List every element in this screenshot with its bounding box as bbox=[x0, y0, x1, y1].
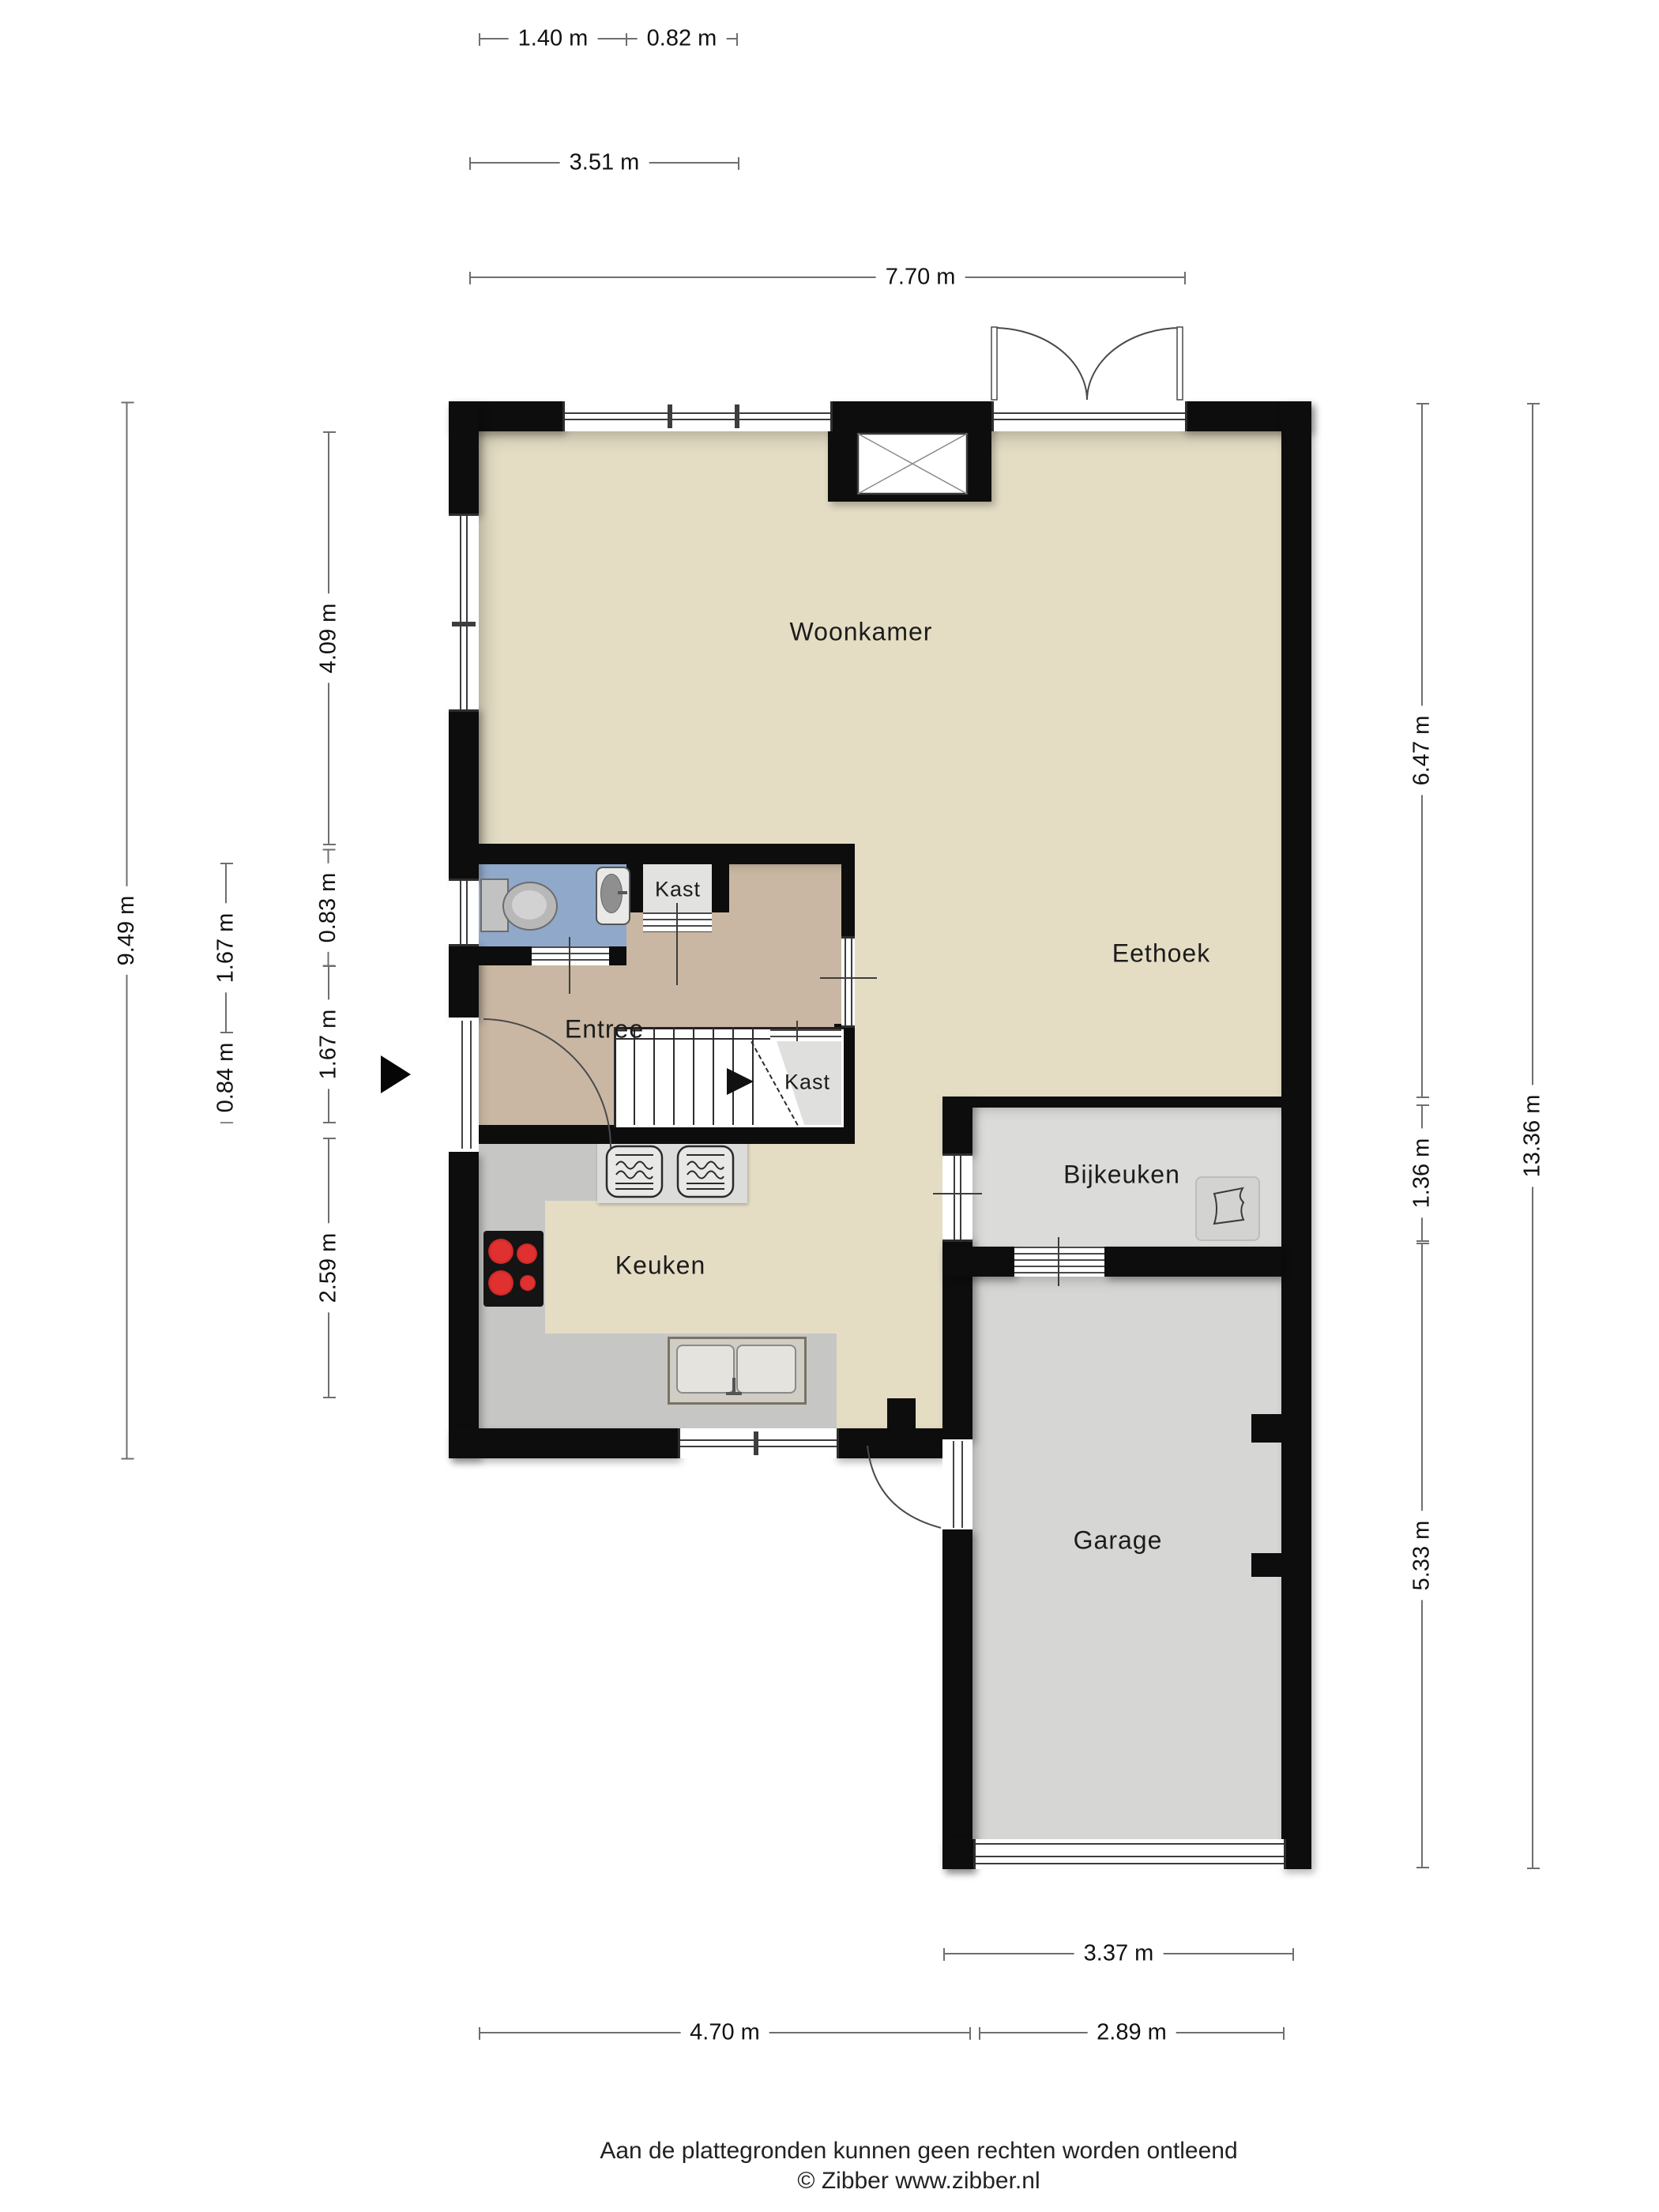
kitchen-sink-basin bbox=[676, 1345, 735, 1394]
window bbox=[449, 513, 479, 712]
dimension-bottom-289: 2.89 m bbox=[980, 2032, 1284, 2033]
footer-copyright: © Zibber www.zibber.nl bbox=[797, 2168, 1040, 2195]
window bbox=[942, 1153, 972, 1242]
window-tick bbox=[933, 1193, 982, 1194]
window-tick bbox=[820, 977, 877, 979]
toilet-bowl-inner bbox=[512, 890, 547, 920]
wall bbox=[449, 1428, 678, 1458]
dimension-left-259: 2.59 m bbox=[328, 1138, 329, 1398]
garage-door bbox=[973, 1839, 1286, 1869]
wall bbox=[449, 1152, 479, 1458]
side-door-leaf bbox=[953, 1441, 963, 1528]
dimension-top-351: 3.51 m bbox=[470, 162, 739, 164]
boiler-icon bbox=[1195, 1176, 1260, 1241]
french-doors-icon bbox=[991, 325, 1183, 401]
room-label-eethoek: Eethoek bbox=[1112, 939, 1210, 969]
dimension-top-140: 1.40 m bbox=[480, 38, 626, 39]
wall bbox=[942, 1247, 1014, 1277]
kitchen-faucet-icon bbox=[726, 1392, 742, 1395]
floorplan-page: Woonkamer Eethoek Entree Kast Kast Keuke… bbox=[0, 0, 1659, 2212]
room-label-kast-hal: Kast bbox=[655, 878, 701, 902]
burner bbox=[488, 1270, 513, 1296]
oven-icon bbox=[605, 1145, 664, 1198]
window bbox=[678, 1428, 839, 1458]
room-label-garage: Garage bbox=[1074, 1526, 1163, 1556]
window-mullion bbox=[754, 1431, 758, 1455]
garage-floor bbox=[972, 1277, 1281, 1839]
footer-disclaimer: Aan de plattegronden kunnen geen rechten… bbox=[600, 2138, 1237, 2165]
wall-stub bbox=[887, 1398, 916, 1428]
wall bbox=[609, 946, 626, 965]
stairs-opening bbox=[770, 1029, 841, 1041]
interior-opening bbox=[1014, 1247, 1104, 1277]
dimension-right-1336: 13.36 m bbox=[1532, 404, 1533, 1868]
window-mullion bbox=[452, 622, 476, 626]
door-tick bbox=[676, 903, 678, 985]
room-label-keuken: Keuken bbox=[615, 1251, 706, 1281]
chimney-icon bbox=[857, 433, 968, 495]
dimension-top-770: 7.70 m bbox=[470, 276, 1185, 278]
wall bbox=[449, 401, 479, 513]
dimension-left-167a: 1.67 m bbox=[225, 863, 227, 1033]
wall bbox=[1281, 401, 1311, 1869]
room-label-woonkamer: Woonkamer bbox=[790, 618, 933, 647]
dimension-right-647: 6.47 m bbox=[1421, 404, 1423, 1097]
burner bbox=[517, 1243, 537, 1264]
wall-pillar bbox=[1251, 1553, 1281, 1577]
dimension-right-136: 1.36 m bbox=[1421, 1105, 1423, 1241]
wall bbox=[479, 844, 855, 864]
door-tick bbox=[1058, 1237, 1059, 1286]
room-label-kast-trap: Kast bbox=[784, 1070, 830, 1095]
dimension-left-083: 0.83 m bbox=[328, 850, 329, 966]
french-door-opening bbox=[991, 401, 1187, 431]
burner bbox=[488, 1239, 513, 1264]
dimension-left-084: 0.84 m bbox=[225, 1033, 227, 1123]
dimension-left-167b: 1.67 m bbox=[328, 966, 329, 1123]
dimension-bottom-470: 4.70 m bbox=[480, 2032, 970, 2033]
dimension-left-409: 4.09 m bbox=[328, 432, 329, 845]
door-tick bbox=[569, 937, 570, 994]
side-door-swing-icon bbox=[865, 1441, 942, 1529]
burner bbox=[520, 1275, 536, 1291]
wall bbox=[942, 1529, 972, 1869]
dimension-left-949: 9.49 m bbox=[126, 403, 128, 1459]
sink-faucet-icon bbox=[618, 891, 627, 894]
window bbox=[449, 878, 479, 946]
window-mullion bbox=[735, 404, 739, 428]
wall bbox=[449, 942, 479, 1018]
wall bbox=[479, 946, 532, 965]
wall bbox=[449, 707, 479, 878]
wall bbox=[1104, 1247, 1281, 1277]
wall bbox=[712, 844, 729, 912]
window-mullion bbox=[668, 404, 672, 428]
window bbox=[562, 401, 833, 431]
wall bbox=[942, 1097, 1281, 1108]
wall-pillar bbox=[1251, 1414, 1281, 1443]
wall bbox=[942, 1839, 973, 1869]
entrance-arrow-icon bbox=[381, 1055, 411, 1093]
dimension-top-082: 0.82 m bbox=[626, 38, 737, 39]
room-label-entree: Entree bbox=[565, 1015, 644, 1044]
kitchen-sink-basin bbox=[736, 1345, 796, 1394]
oven-icon bbox=[676, 1145, 735, 1198]
stairs-direction-arrow-icon bbox=[727, 1068, 754, 1095]
interior-window bbox=[841, 936, 855, 1028]
room-label-bijkeuken: Bijkeuken bbox=[1063, 1161, 1180, 1190]
toilet-door-opening bbox=[532, 946, 609, 965]
entrance-door-leaf bbox=[461, 1021, 472, 1149]
dimension-right-533: 5.33 m bbox=[1421, 1243, 1423, 1868]
wall bbox=[841, 844, 855, 936]
dimension-bottom-337: 3.37 m bbox=[944, 1953, 1293, 1954]
